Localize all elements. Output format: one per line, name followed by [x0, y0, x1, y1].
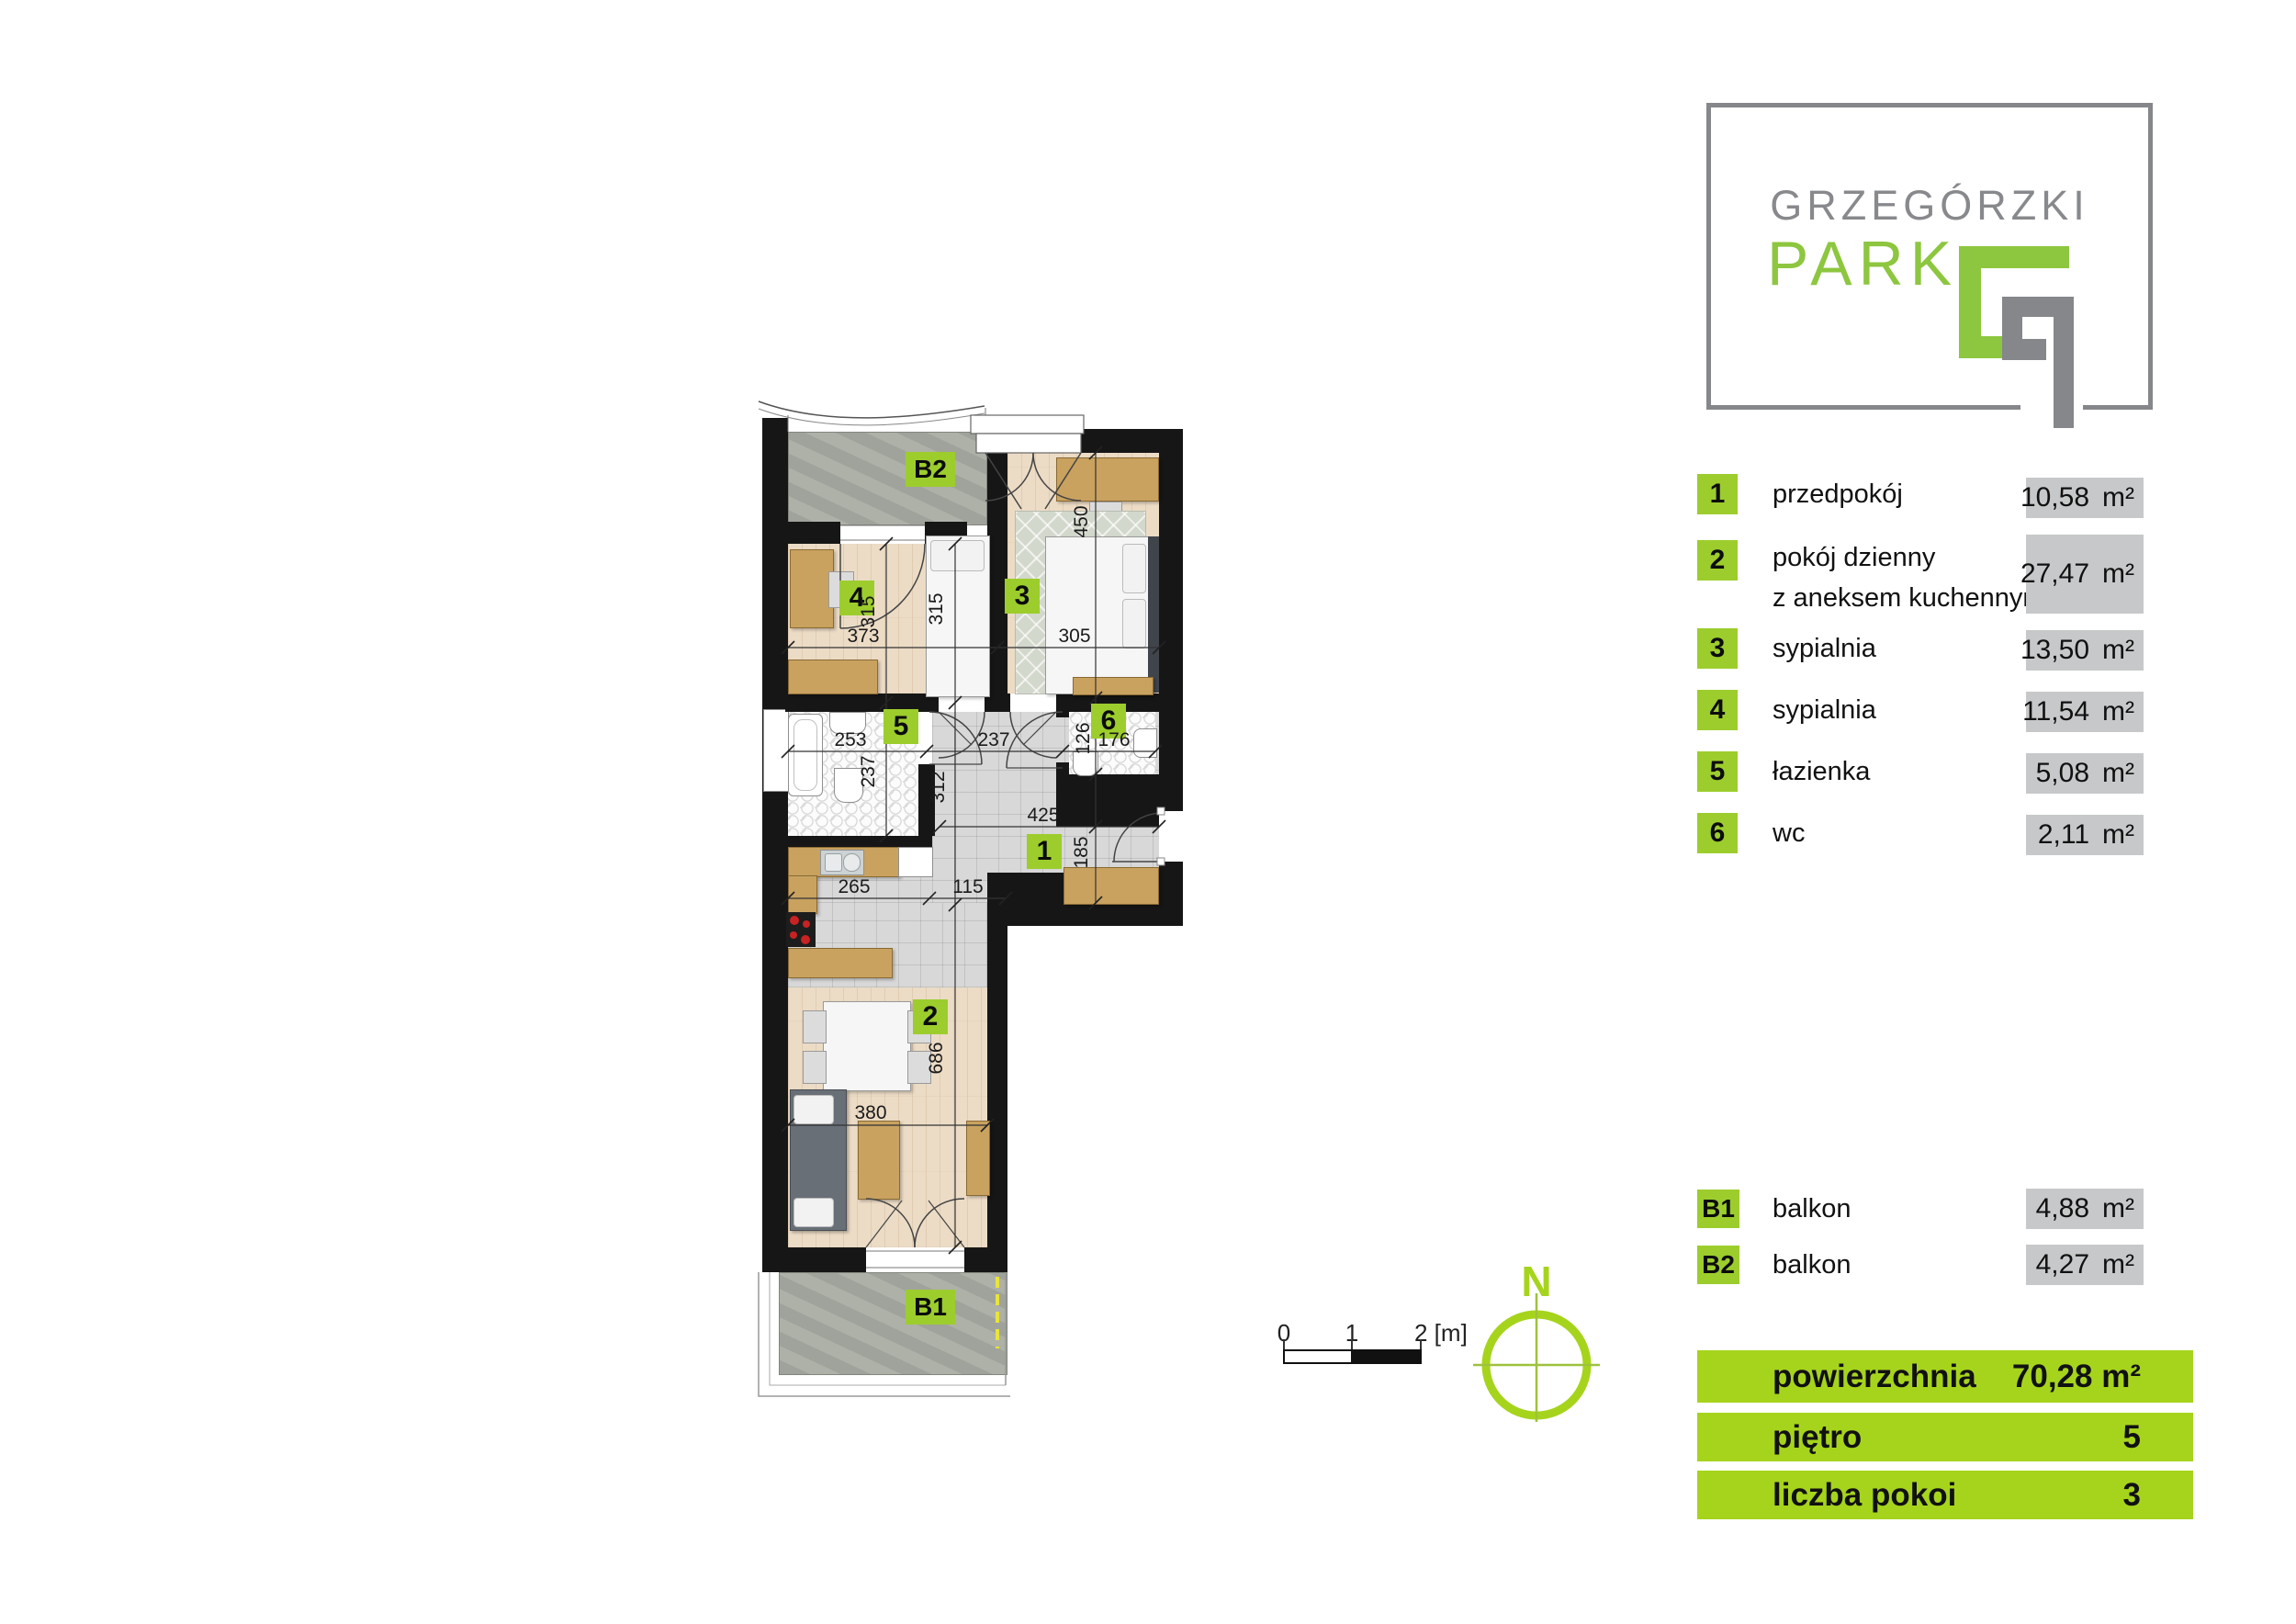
- summary-rooms-value: 3: [2123, 1477, 2141, 1514]
- legend-badge-2: 2: [1697, 540, 1738, 581]
- legend-label-1: przedpokój: [1773, 474, 2048, 514]
- dim-237-corridor: 237: [966, 730, 1021, 750]
- summary-rooms-label: liczba pokoi: [1773, 1477, 1956, 1514]
- dim-237-bath: 237: [859, 744, 879, 799]
- badge-room-5: 5: [884, 709, 918, 744]
- summary-row-floor: piętro 5: [1697, 1413, 2193, 1461]
- scale-bar-icon: [1277, 1332, 1433, 1369]
- logo-border-right: [2148, 103, 2153, 410]
- logo-border-top: [1706, 103, 2153, 107]
- badge-balcony-b2: B2: [906, 452, 955, 487]
- legend-badge-4: 4: [1697, 690, 1738, 730]
- dim-425: 425: [1016, 806, 1071, 826]
- legend-value-b1: 4,88m²: [2026, 1189, 2144, 1229]
- logo-mark-gray-hook: [2002, 339, 2046, 360]
- legend-label-4: sypialnia: [1773, 690, 2048, 730]
- badge-room-2: 2: [913, 999, 948, 1034]
- compass-icon: [1460, 1286, 1616, 1433]
- legend-value-4: 11,54m²: [2026, 692, 2144, 732]
- summary-floor-value: 5: [2123, 1419, 2141, 1456]
- badge-room-1: 1: [1027, 834, 1062, 869]
- dim-305: 305: [1047, 626, 1102, 647]
- legend-value-2: 27,47m²: [2026, 535, 2144, 614]
- dim-312: 312: [929, 760, 949, 815]
- logo-border-bottom-right: [2083, 405, 2153, 410]
- floor-plan-page: B2 4 3 5 6 1 2 B1 373 305 253 237 176 42…: [0, 0, 2296, 1624]
- legend-badge-6: 6: [1697, 813, 1738, 853]
- legend-label-b1: balkon: [1773, 1189, 2048, 1229]
- logo-mark-gray-right: [2054, 297, 2074, 428]
- summary-area-value: 70,28 m²: [2012, 1359, 2141, 1395]
- dim-185: 185: [1072, 825, 1092, 880]
- legend-label-3: sypialnia: [1773, 628, 2048, 669]
- legend-label-5: łazienka: [1773, 751, 2048, 792]
- dim-686: 686: [927, 1031, 947, 1086]
- legend-value-3: 13,50m²: [2026, 630, 2144, 671]
- summary-row-rooms: liczba pokoi 3: [1697, 1471, 2193, 1519]
- dim-315-room4: 315: [859, 584, 879, 639]
- legend-badge-b2: B2: [1697, 1246, 1739, 1284]
- legend-label-b2: balkon: [1773, 1245, 2048, 1285]
- summary-floor-label: piętro: [1773, 1419, 1862, 1456]
- badge-room-3: 3: [1005, 579, 1040, 614]
- dim-126: 126: [1074, 711, 1094, 766]
- dim-315-bed: 315: [927, 581, 947, 637]
- dim-450: 450: [1072, 494, 1092, 549]
- legend-badge-5: 5: [1697, 751, 1738, 792]
- summary-area-label: powierzchnia: [1773, 1359, 1976, 1395]
- badge-balcony-b1: B1: [906, 1290, 955, 1325]
- legend-value-6: 2,11m²: [2026, 815, 2144, 855]
- logo-border-bottom-left: [1706, 405, 2020, 410]
- legend-badge-1: 1: [1697, 474, 1738, 514]
- legend-label-6: wc: [1773, 813, 2048, 853]
- dim-265: 265: [827, 877, 882, 897]
- logo-title-line1: GRZEGÓRZKI: [1727, 182, 2133, 230]
- dim-115: 115: [940, 877, 996, 897]
- dim-176: 176: [1086, 730, 1142, 750]
- logo-border-left: [1706, 103, 1711, 410]
- summary-row-area: powierzchnia 70,28 m²: [1697, 1350, 2193, 1403]
- legend-value-5: 5,08m²: [2026, 753, 2144, 794]
- legend-value-1: 10,58m²: [2026, 478, 2144, 518]
- dim-380: 380: [843, 1103, 898, 1123]
- legend-badge-b1: B1: [1697, 1190, 1739, 1228]
- legend-value-b2: 4,27m²: [2026, 1245, 2144, 1285]
- legend-badge-3: 3: [1697, 628, 1738, 669]
